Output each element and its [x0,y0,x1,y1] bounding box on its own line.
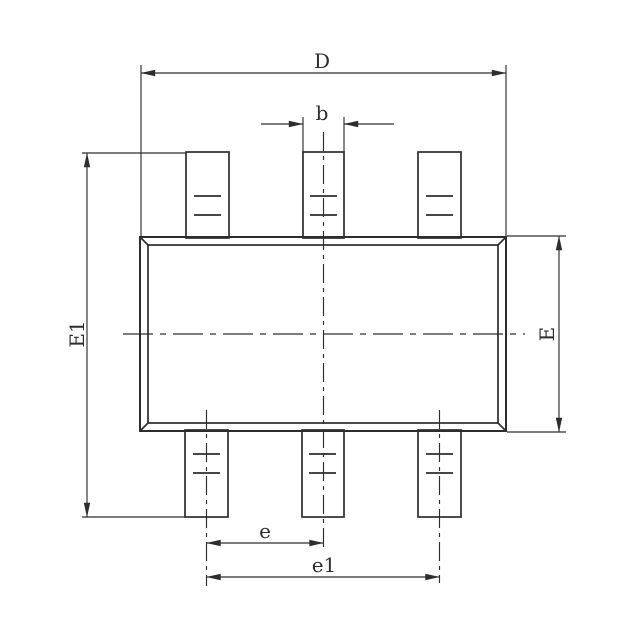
dimension-E1: E1 [65,153,186,517]
dimension-label-D: D [314,49,330,73]
body-chamfer-bottom-right [497,422,505,430]
body-chamfer-top-right [497,238,505,246]
dimension-e: e [207,519,324,543]
dimension-label-e1: e1 [312,553,337,577]
dimension-label-E: E [535,327,559,342]
dimension-label-e: e [259,519,271,543]
package-outline-drawing: D b E1 E e [0,0,640,640]
center-lines [123,132,525,586]
body-chamfer-top-left [141,238,149,246]
dimension-label-b: b [316,101,329,125]
dimension-b: b [261,101,394,152]
body-chamfer-bottom-left [141,422,149,430]
dimension-label-E1: E1 [65,320,89,347]
top-lead-left [186,152,229,238]
dimension-e1: e1 [207,553,440,577]
drawing-canvas: D b E1 E e [0,0,640,640]
top-lead-right [418,152,461,238]
